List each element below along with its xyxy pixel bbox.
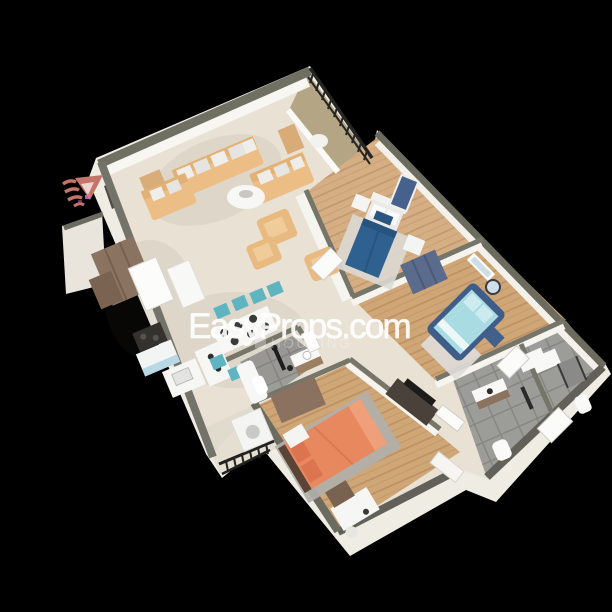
svg-text:EasyProps.com: EasyProps.com: [188, 307, 410, 346]
